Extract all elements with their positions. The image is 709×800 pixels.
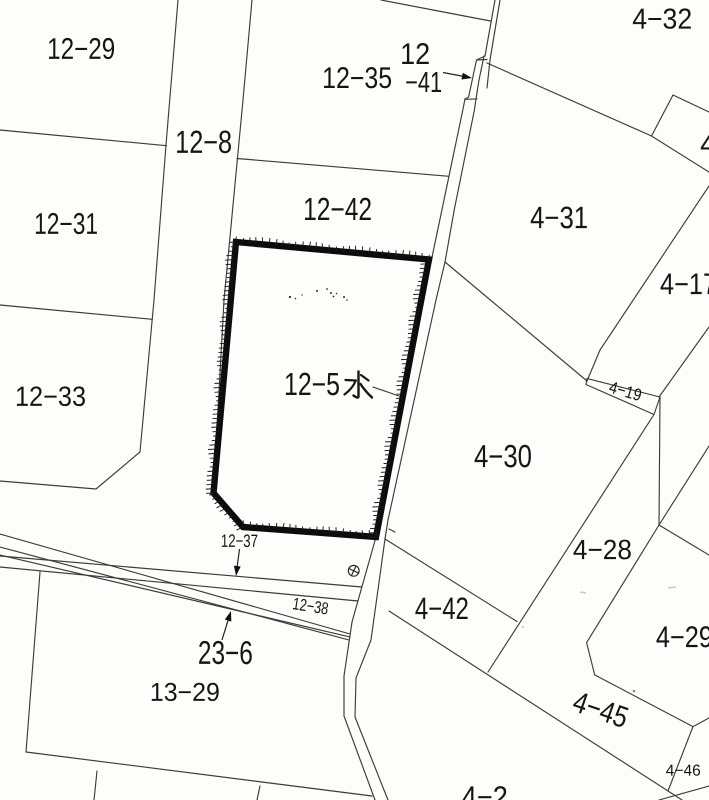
svg-text:4−28: 4−28 xyxy=(573,534,632,565)
svg-text:4−32: 4−32 xyxy=(632,4,692,36)
svg-text:12−35: 12−35 xyxy=(322,62,392,95)
svg-text:12−5: 12−5 xyxy=(284,366,340,402)
svg-text:4−29: 4−29 xyxy=(656,621,709,654)
svg-text:12−37: 12−37 xyxy=(221,531,258,551)
svg-text:4−46: 4−46 xyxy=(666,763,701,780)
svg-text:12−42: 12−42 xyxy=(303,191,372,227)
svg-text:4−30: 4−30 xyxy=(474,438,532,474)
svg-text:12−31: 12−31 xyxy=(34,208,98,241)
svg-text:4−17: 4−17 xyxy=(660,268,709,301)
svg-text:23−6: 23−6 xyxy=(198,634,253,671)
svg-text:13−29: 13−29 xyxy=(150,677,220,707)
svg-text:4: 4 xyxy=(700,128,709,161)
svg-text:4−42: 4−42 xyxy=(415,591,469,626)
svg-text:12−8: 12−8 xyxy=(175,124,232,160)
svg-text:4−31: 4−31 xyxy=(530,200,588,235)
svg-text:−41: −41 xyxy=(405,67,442,99)
svg-text:12−29: 12−29 xyxy=(47,33,115,66)
svg-text:4−2: 4−2 xyxy=(462,781,508,800)
svg-text:12−33: 12−33 xyxy=(15,381,86,412)
